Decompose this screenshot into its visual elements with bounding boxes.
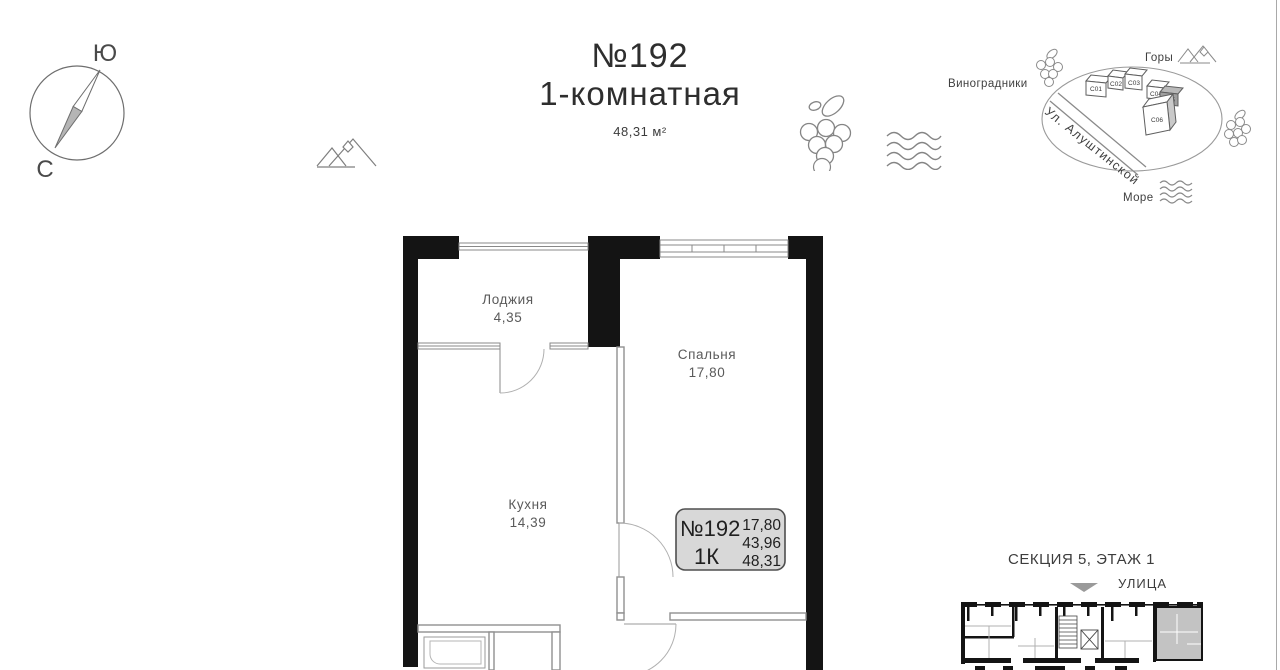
bedroom-area: 17,80 <box>689 365 726 380</box>
grapes-icon <box>793 93 853 171</box>
mountains-label: Горы <box>1145 52 1173 64</box>
building-c03: C03 <box>1125 68 1147 90</box>
mountains-icon <box>315 136 381 172</box>
mountains-small-icon <box>1178 46 1216 63</box>
mini-plan-elevator <box>1081 630 1098 649</box>
compass-north-label: С <box>36 156 53 183</box>
building-c06: C06 <box>1143 94 1176 135</box>
street-name: Ул. Алуштинской <box>1042 104 1142 188</box>
compass: Ю С <box>15 25 135 190</box>
mini-plan-highlighted-apartment <box>1156 607 1202 660</box>
info-area-living: 17,80 <box>742 517 781 534</box>
loggia-area: 4,35 <box>494 310 523 325</box>
grapes-right-icon <box>1225 108 1251 146</box>
outer-walls <box>403 236 823 670</box>
svg-text:C02: C02 <box>1110 81 1122 88</box>
page-frame-line <box>1276 0 1277 670</box>
bedroom-name: Спальня <box>678 347 736 362</box>
compass-needle-north-half <box>55 107 82 149</box>
interior-wall-horizontal <box>617 613 806 620</box>
loggia-window <box>459 243 588 250</box>
bedroom-window <box>660 240 788 257</box>
mini-plan-rooms <box>965 626 1152 658</box>
buildings-cluster: C01 C02 C03 C04 C05 <box>1086 68 1183 135</box>
svg-text:C01: C01 <box>1090 86 1102 93</box>
vineyards-label: Виноградники <box>948 78 1028 90</box>
section-street-label: УЛИЦА <box>1118 576 1167 591</box>
room-door-swing <box>619 523 673 577</box>
info-area-total: 48,31 <box>742 553 781 570</box>
svg-text:C03: C03 <box>1128 80 1140 87</box>
apartment-floor-plan: Лоджия 4,35 Спальня 17,80 Кухня 14,39 №1… <box>400 233 830 670</box>
sea-label: Море <box>1123 192 1154 204</box>
waves-small-icon <box>1160 181 1192 203</box>
compass-south-label: Ю <box>93 40 117 67</box>
svg-text:C06: C06 <box>1151 117 1163 124</box>
grapes-small-icon <box>1037 47 1063 86</box>
kitchen-area: 14,39 <box>510 515 547 530</box>
apartment-info-box: №192 1К 17,80 43,96 48,31 <box>676 509 785 570</box>
header: №192 1-комнатная 48,31 м² <box>440 36 840 139</box>
info-number: №192 <box>680 516 740 541</box>
apartment-number: №192 <box>440 36 840 76</box>
loggia-door-window <box>418 343 588 349</box>
info-area-main: 43,96 <box>742 535 781 552</box>
info-rooms: 1К <box>694 544 719 569</box>
waves-icon <box>886 130 942 170</box>
apartment-total-area: 48,31 м² <box>440 124 840 139</box>
loggia-name: Лоджия <box>482 292 533 307</box>
hall-door-swing <box>624 624 676 670</box>
apartment-type: 1-комнатная <box>440 76 840 112</box>
floor-plan-page: Ю С №192 1-комнатная 48,31 м² <box>0 0 1280 670</box>
street-arrow-icon <box>1068 582 1100 594</box>
compass-needle-south-half <box>73 70 100 112</box>
bathtub <box>424 637 485 668</box>
mini-plan-stairs <box>1059 616 1077 648</box>
loggia-door-swing <box>500 349 544 393</box>
section-mini-plan <box>955 596 1208 670</box>
kitchen-name: Кухня <box>508 497 547 512</box>
location-map: Ул. Алуштинской C01 C02 C03 C04 <box>940 25 1272 220</box>
interior-wall-vertical <box>617 347 624 613</box>
street-lines <box>1050 93 1146 175</box>
building-c01: C01 <box>1086 75 1111 97</box>
section-title: СЕКЦИЯ 5, ЭТАЖ 1 <box>955 551 1208 568</box>
